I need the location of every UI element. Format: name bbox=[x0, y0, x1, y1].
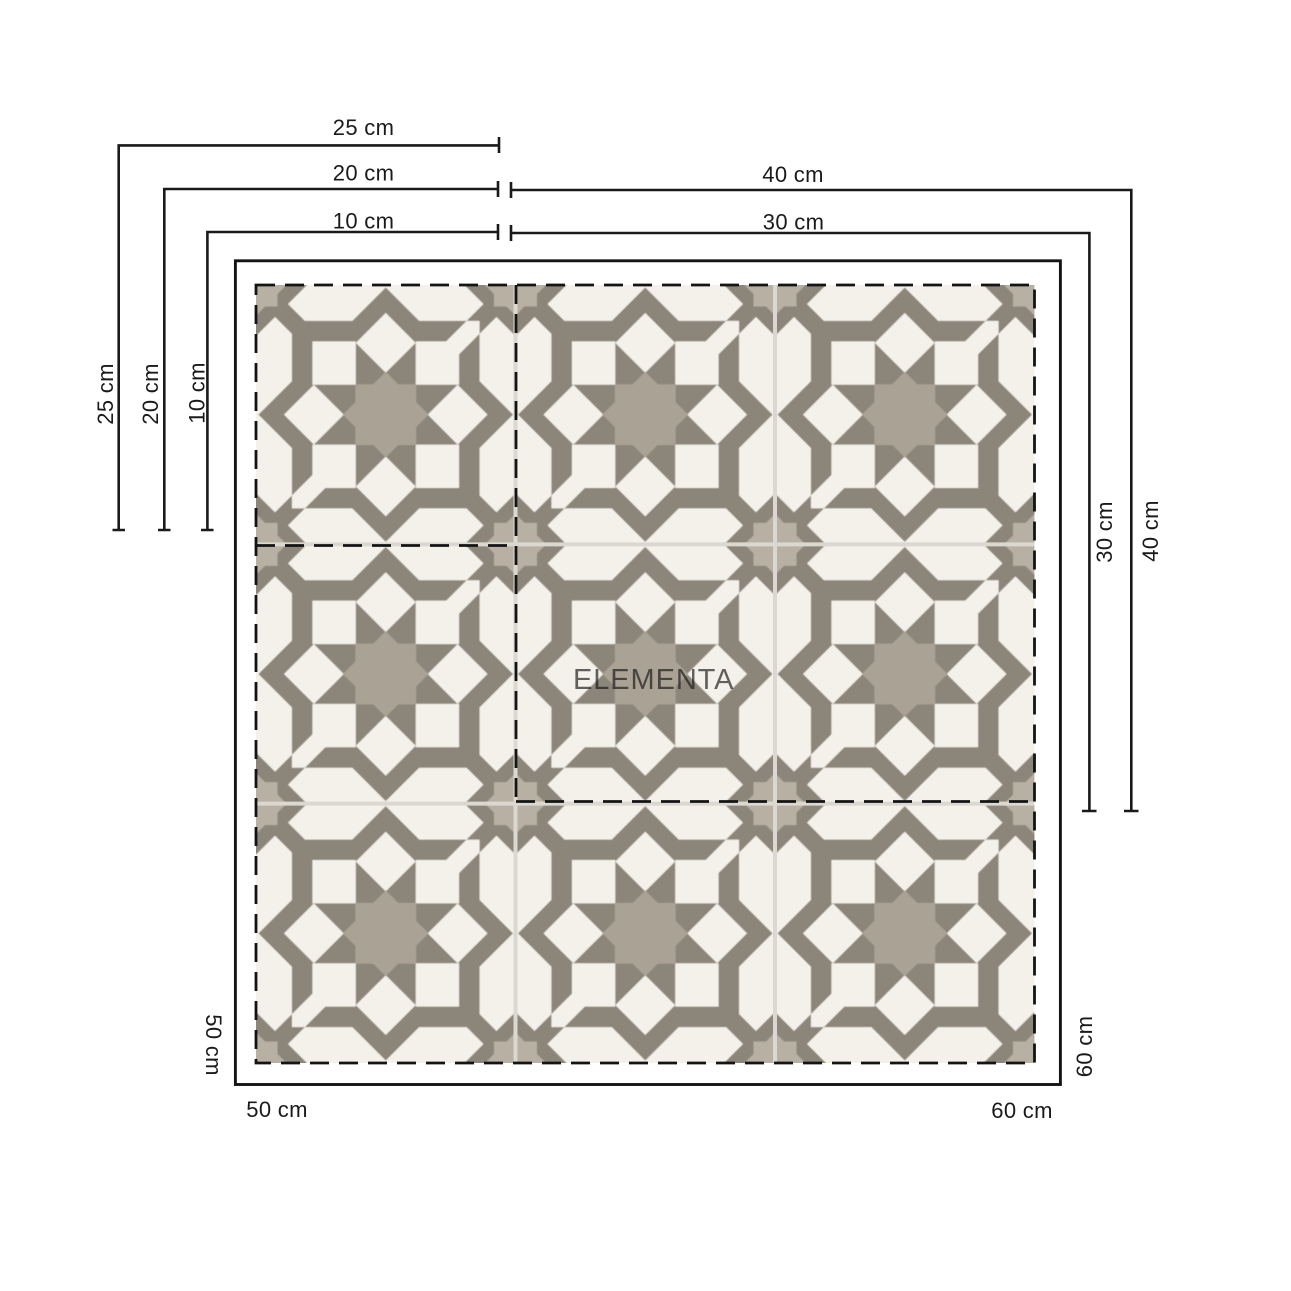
svg-text:20 cm: 20 cm bbox=[333, 161, 394, 186]
svg-text:50 cm: 50 cm bbox=[201, 1014, 226, 1075]
svg-text:25 cm: 25 cm bbox=[93, 363, 118, 424]
svg-text:ELEMENTA: ELEMENTA bbox=[573, 664, 734, 696]
svg-text:10 cm: 10 cm bbox=[185, 362, 210, 423]
svg-text:60 cm: 60 cm bbox=[991, 1098, 1052, 1123]
svg-text:20 cm: 20 cm bbox=[138, 363, 163, 424]
svg-text:30 cm: 30 cm bbox=[1092, 501, 1117, 562]
svg-text:30 cm: 30 cm bbox=[763, 210, 824, 235]
svg-text:10 cm: 10 cm bbox=[333, 209, 394, 234]
svg-text:50 cm: 50 cm bbox=[246, 1097, 307, 1122]
svg-text:40 cm: 40 cm bbox=[1138, 500, 1163, 561]
svg-text:40 cm: 40 cm bbox=[762, 162, 823, 187]
svg-text:60 cm: 60 cm bbox=[1072, 1016, 1097, 1077]
svg-text:25 cm: 25 cm bbox=[333, 115, 394, 140]
